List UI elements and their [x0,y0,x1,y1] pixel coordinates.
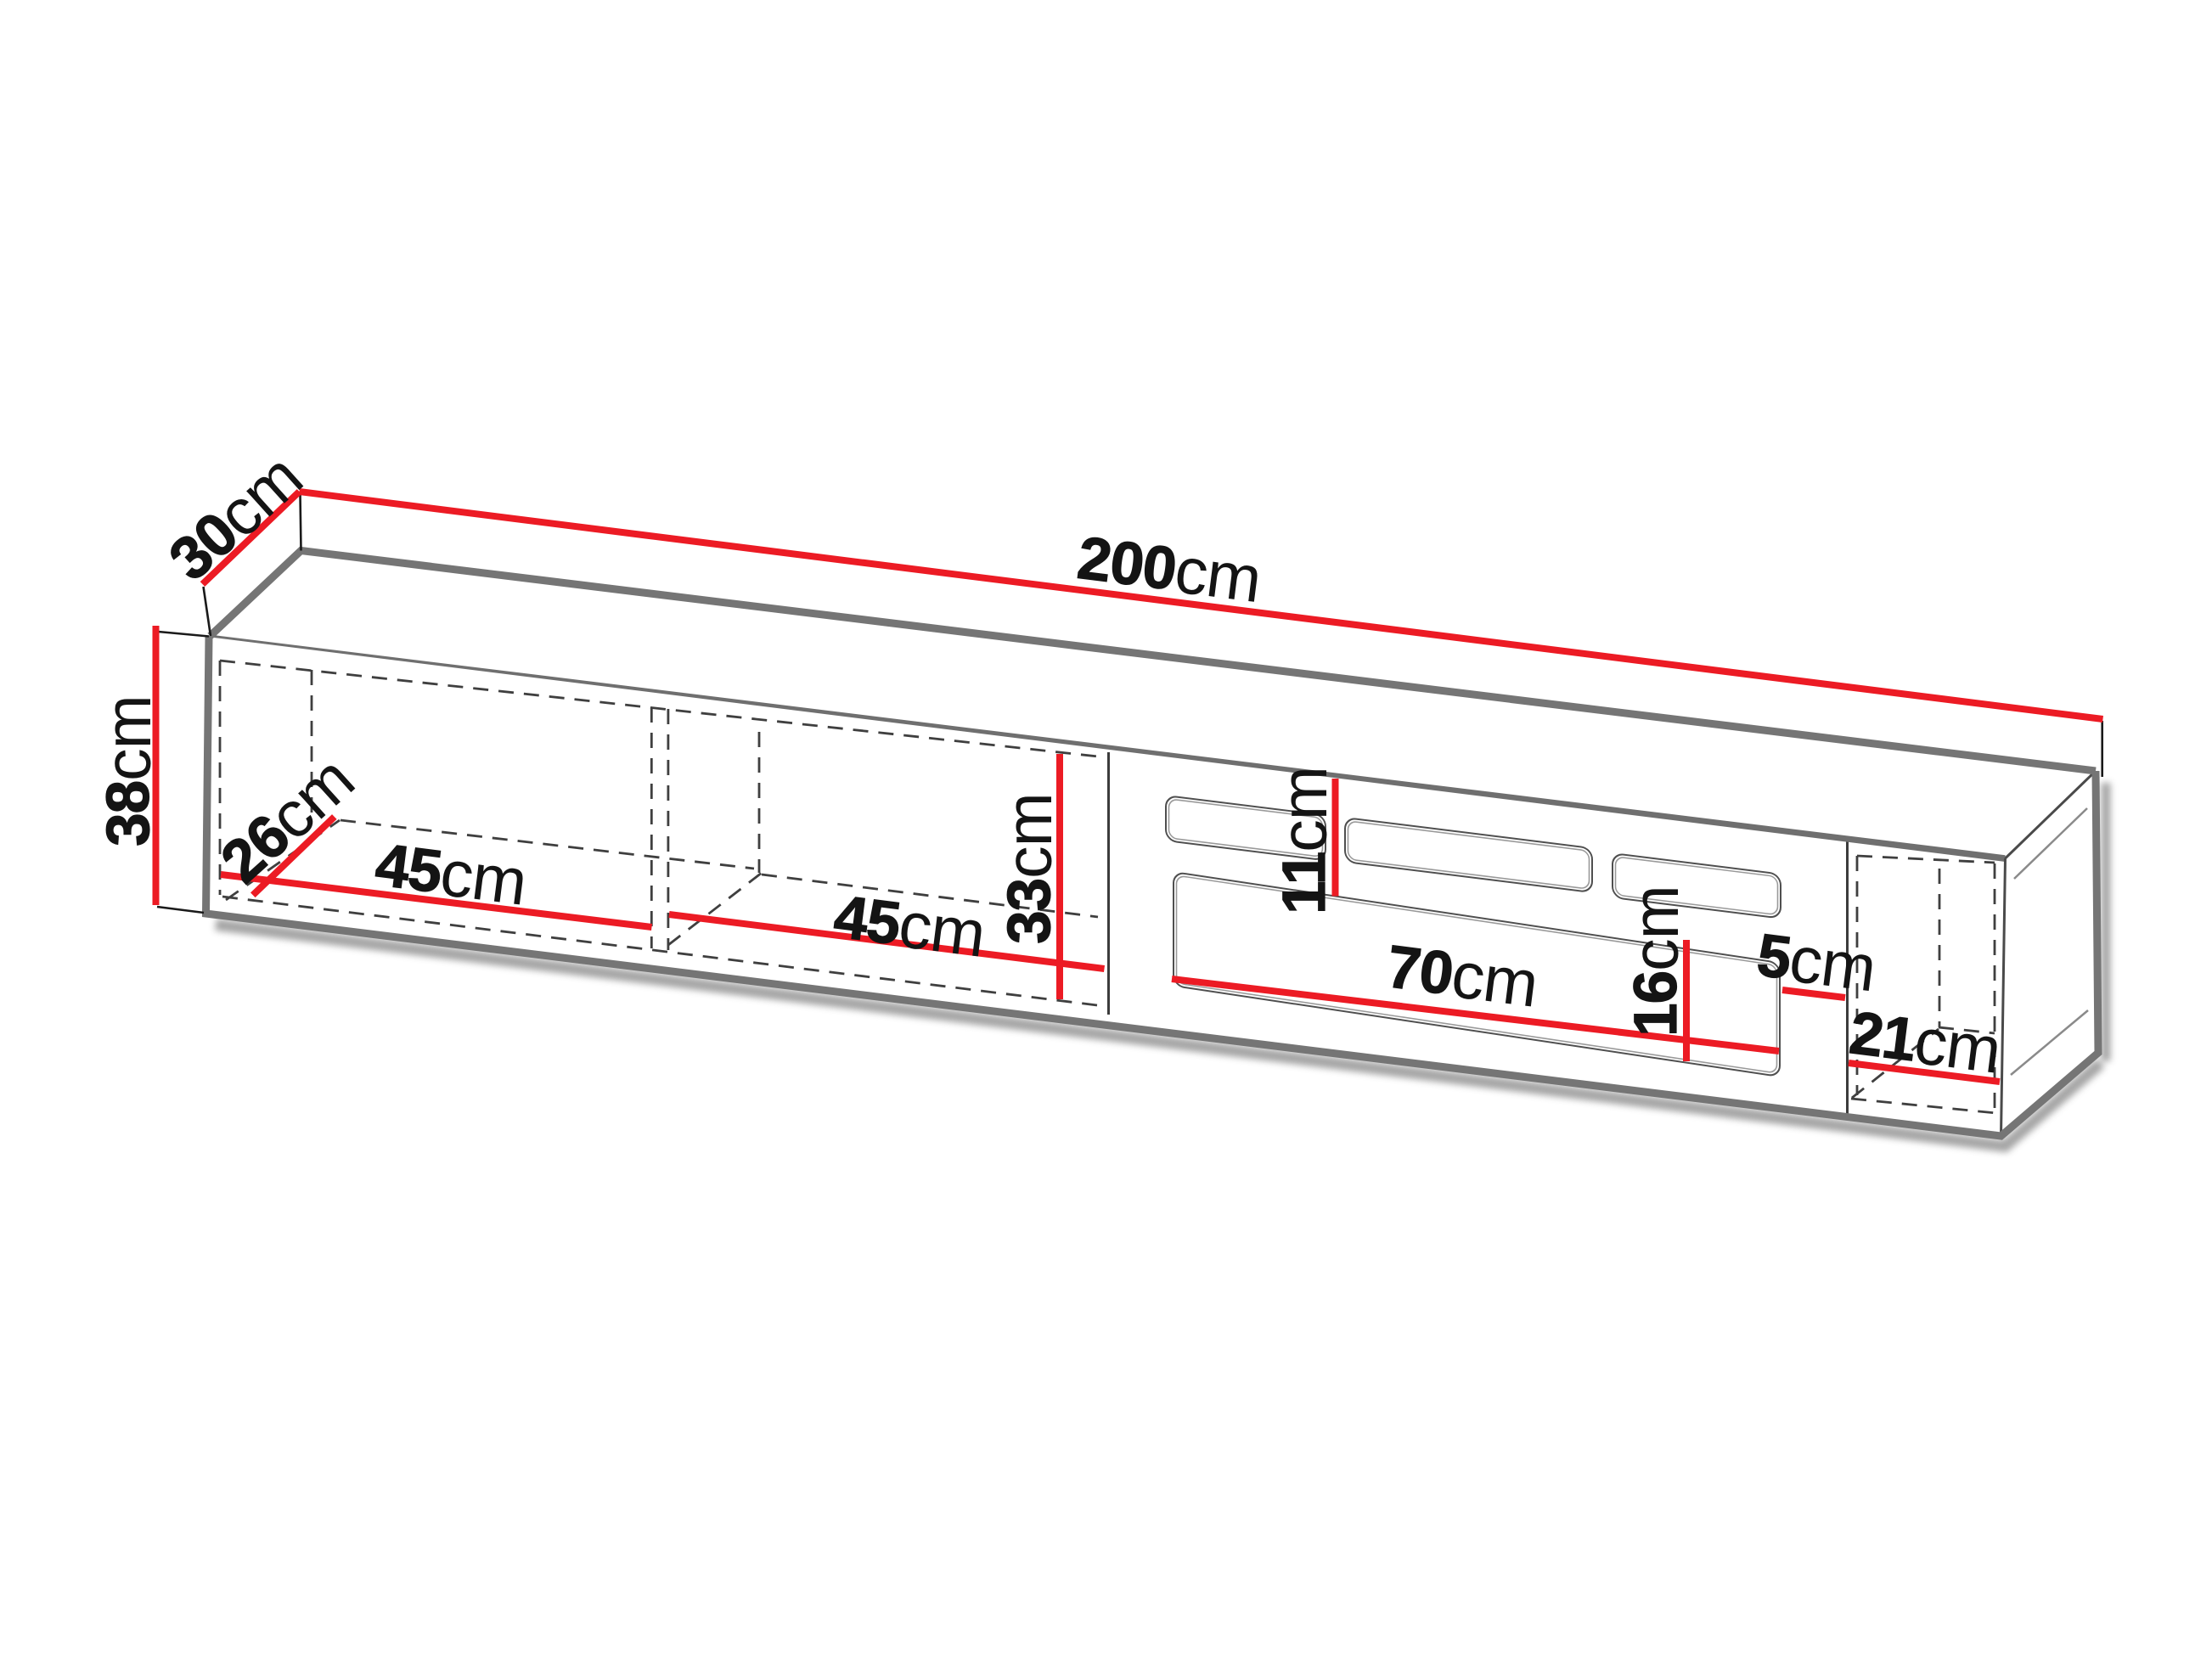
svg-text:16cm: 16cm [1619,886,1692,1037]
svg-text:38cm: 38cm [92,695,165,846]
svg-text:11cm: 11cm [1268,767,1341,914]
svg-text:33cm: 33cm [993,793,1066,944]
